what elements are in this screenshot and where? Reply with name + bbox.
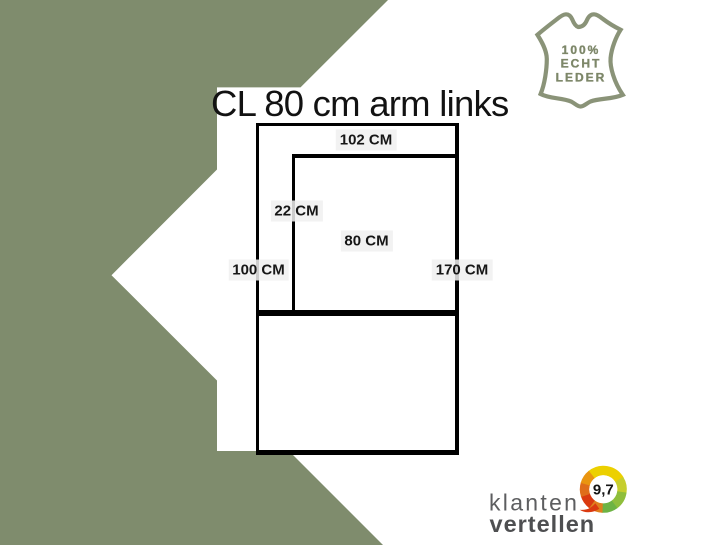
- svg-text:100%: 100%: [562, 43, 601, 57]
- svg-text:vertellen: vertellen: [490, 511, 596, 537]
- svg-text:LEDER: LEDER: [556, 70, 607, 84]
- svg-text:ECHT: ECHT: [561, 57, 602, 71]
- svg-text:9,7: 9,7: [593, 482, 614, 499]
